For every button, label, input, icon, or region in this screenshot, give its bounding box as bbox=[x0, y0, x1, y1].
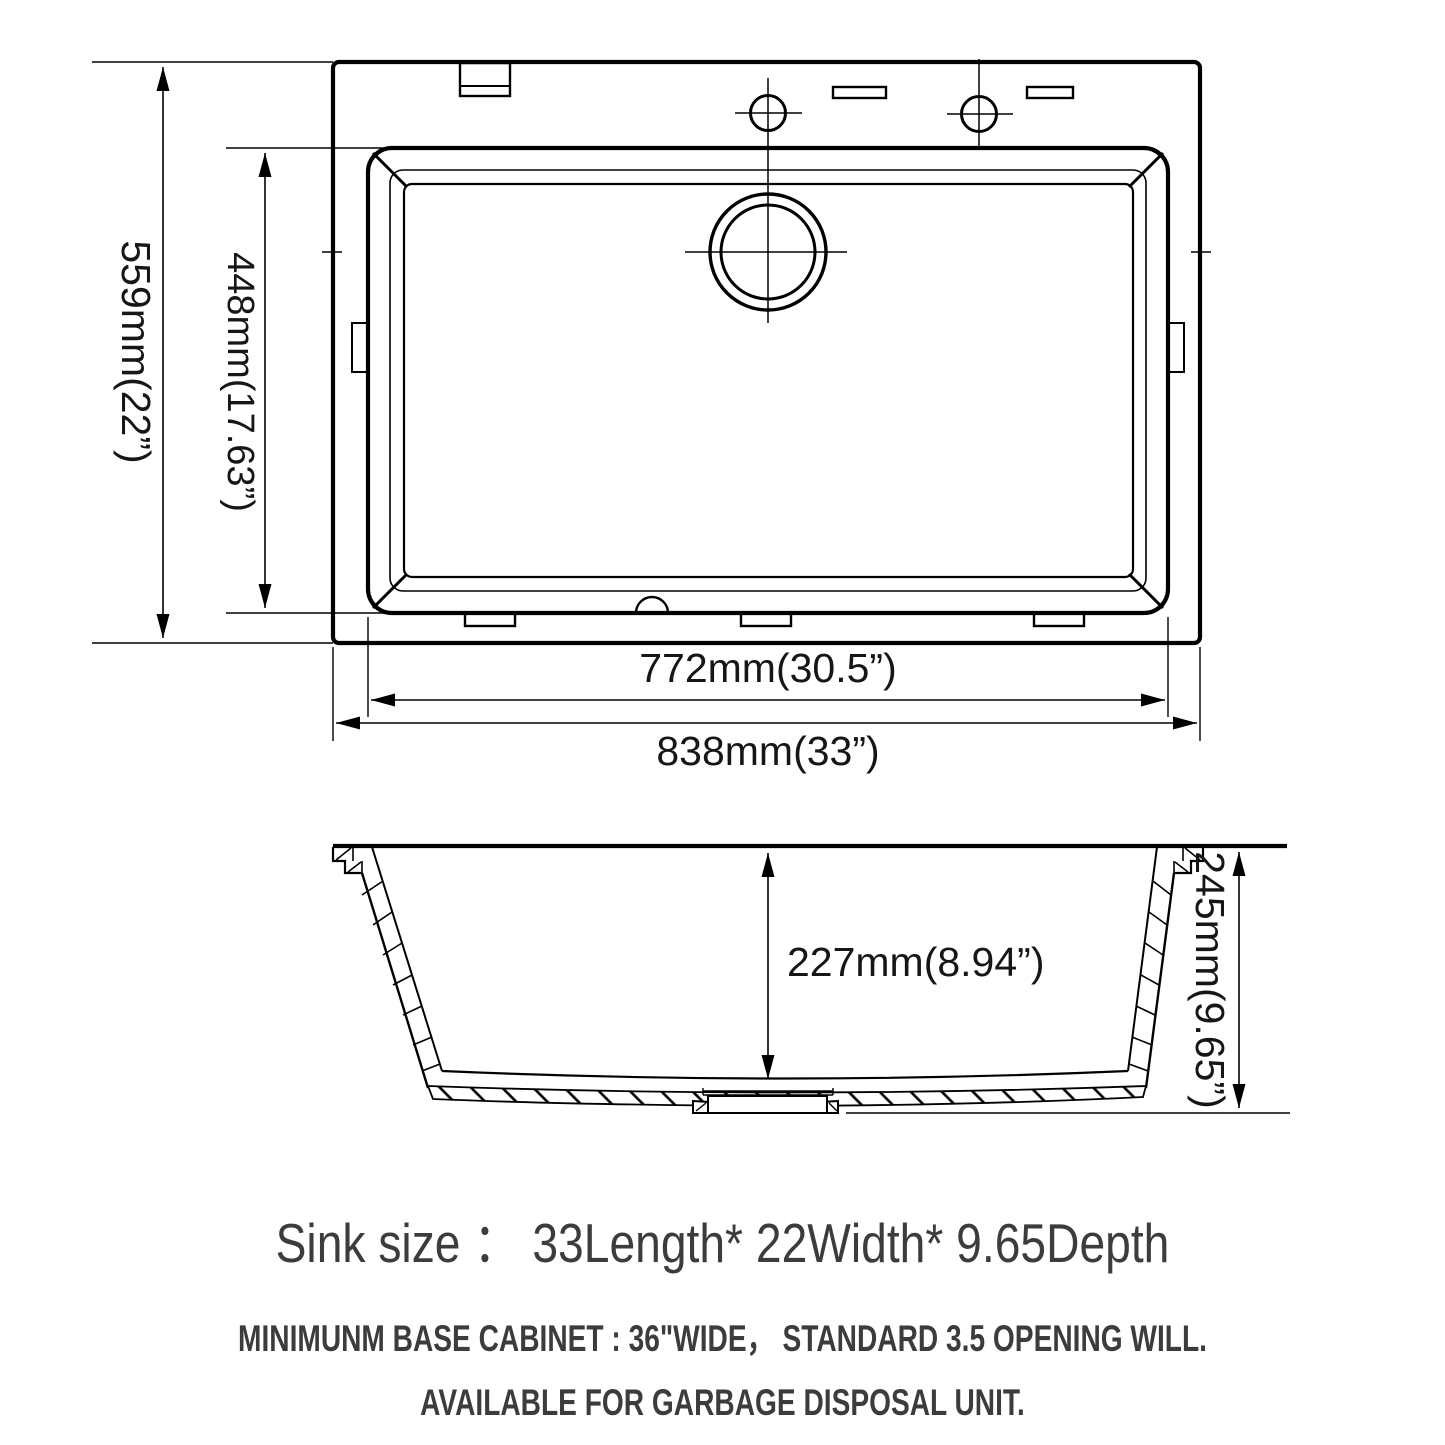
dim-772-label: 772mm(30.5”) bbox=[639, 645, 896, 691]
deck-slot-2 bbox=[1027, 87, 1073, 98]
top-view-dimensions: 559mm(22”) 448mm(17.63”) 772mm(30.5”) 83… bbox=[92, 62, 1200, 774]
side-clip-left bbox=[352, 323, 368, 372]
drain-opening bbox=[322, 194, 1211, 310]
section-view: 227mm(8.94”) 245mm(9.65”) bbox=[333, 846, 1290, 1113]
bottom-notch bbox=[636, 597, 668, 613]
right-wall-hatch bbox=[1129, 881, 1171, 1071]
deck-slot-1 bbox=[833, 87, 886, 98]
notes-block: Sink size ： 33Length* 22Width* 9.65Depth… bbox=[0, 1198, 1445, 1444]
dim-245-label: 245mm(9.65”) bbox=[1187, 851, 1233, 1108]
dim-838-label: 838mm(33”) bbox=[656, 728, 879, 774]
drain-plate bbox=[708, 1096, 827, 1113]
dim-559-label: 559mm(22”) bbox=[113, 240, 159, 463]
left-wall-outer bbox=[362, 873, 428, 1088]
top-clip bbox=[460, 63, 510, 96]
sink-spec-drawing: 559mm(22”) 448mm(17.63”) 772mm(30.5”) 83… bbox=[0, 0, 1445, 1445]
dim-448-label: 448mm(17.63”) bbox=[219, 252, 261, 512]
cabinet-note-text: MINIMUNM BASE CABINET : 36"WIDE， STANDAR… bbox=[173, 1308, 1271, 1362]
disposal-note-text: AVAILABLE FOR GARBAGE DISPOSAL UNIT. bbox=[173, 1382, 1271, 1424]
side-clip-right bbox=[1168, 323, 1184, 372]
left-flange-edges bbox=[353, 847, 362, 873]
right-flange-edges bbox=[1174, 847, 1183, 873]
top-view: 559mm(22”) 448mm(17.63”) 772mm(30.5”) 83… bbox=[92, 59, 1211, 774]
floor-inner-line bbox=[442, 1071, 1128, 1079]
sink-size-text: Sink size ： 33Length* 22Width* 9.65Depth bbox=[116, 1198, 1330, 1278]
dim-227-label: 227mm(8.94”) bbox=[787, 939, 1044, 985]
